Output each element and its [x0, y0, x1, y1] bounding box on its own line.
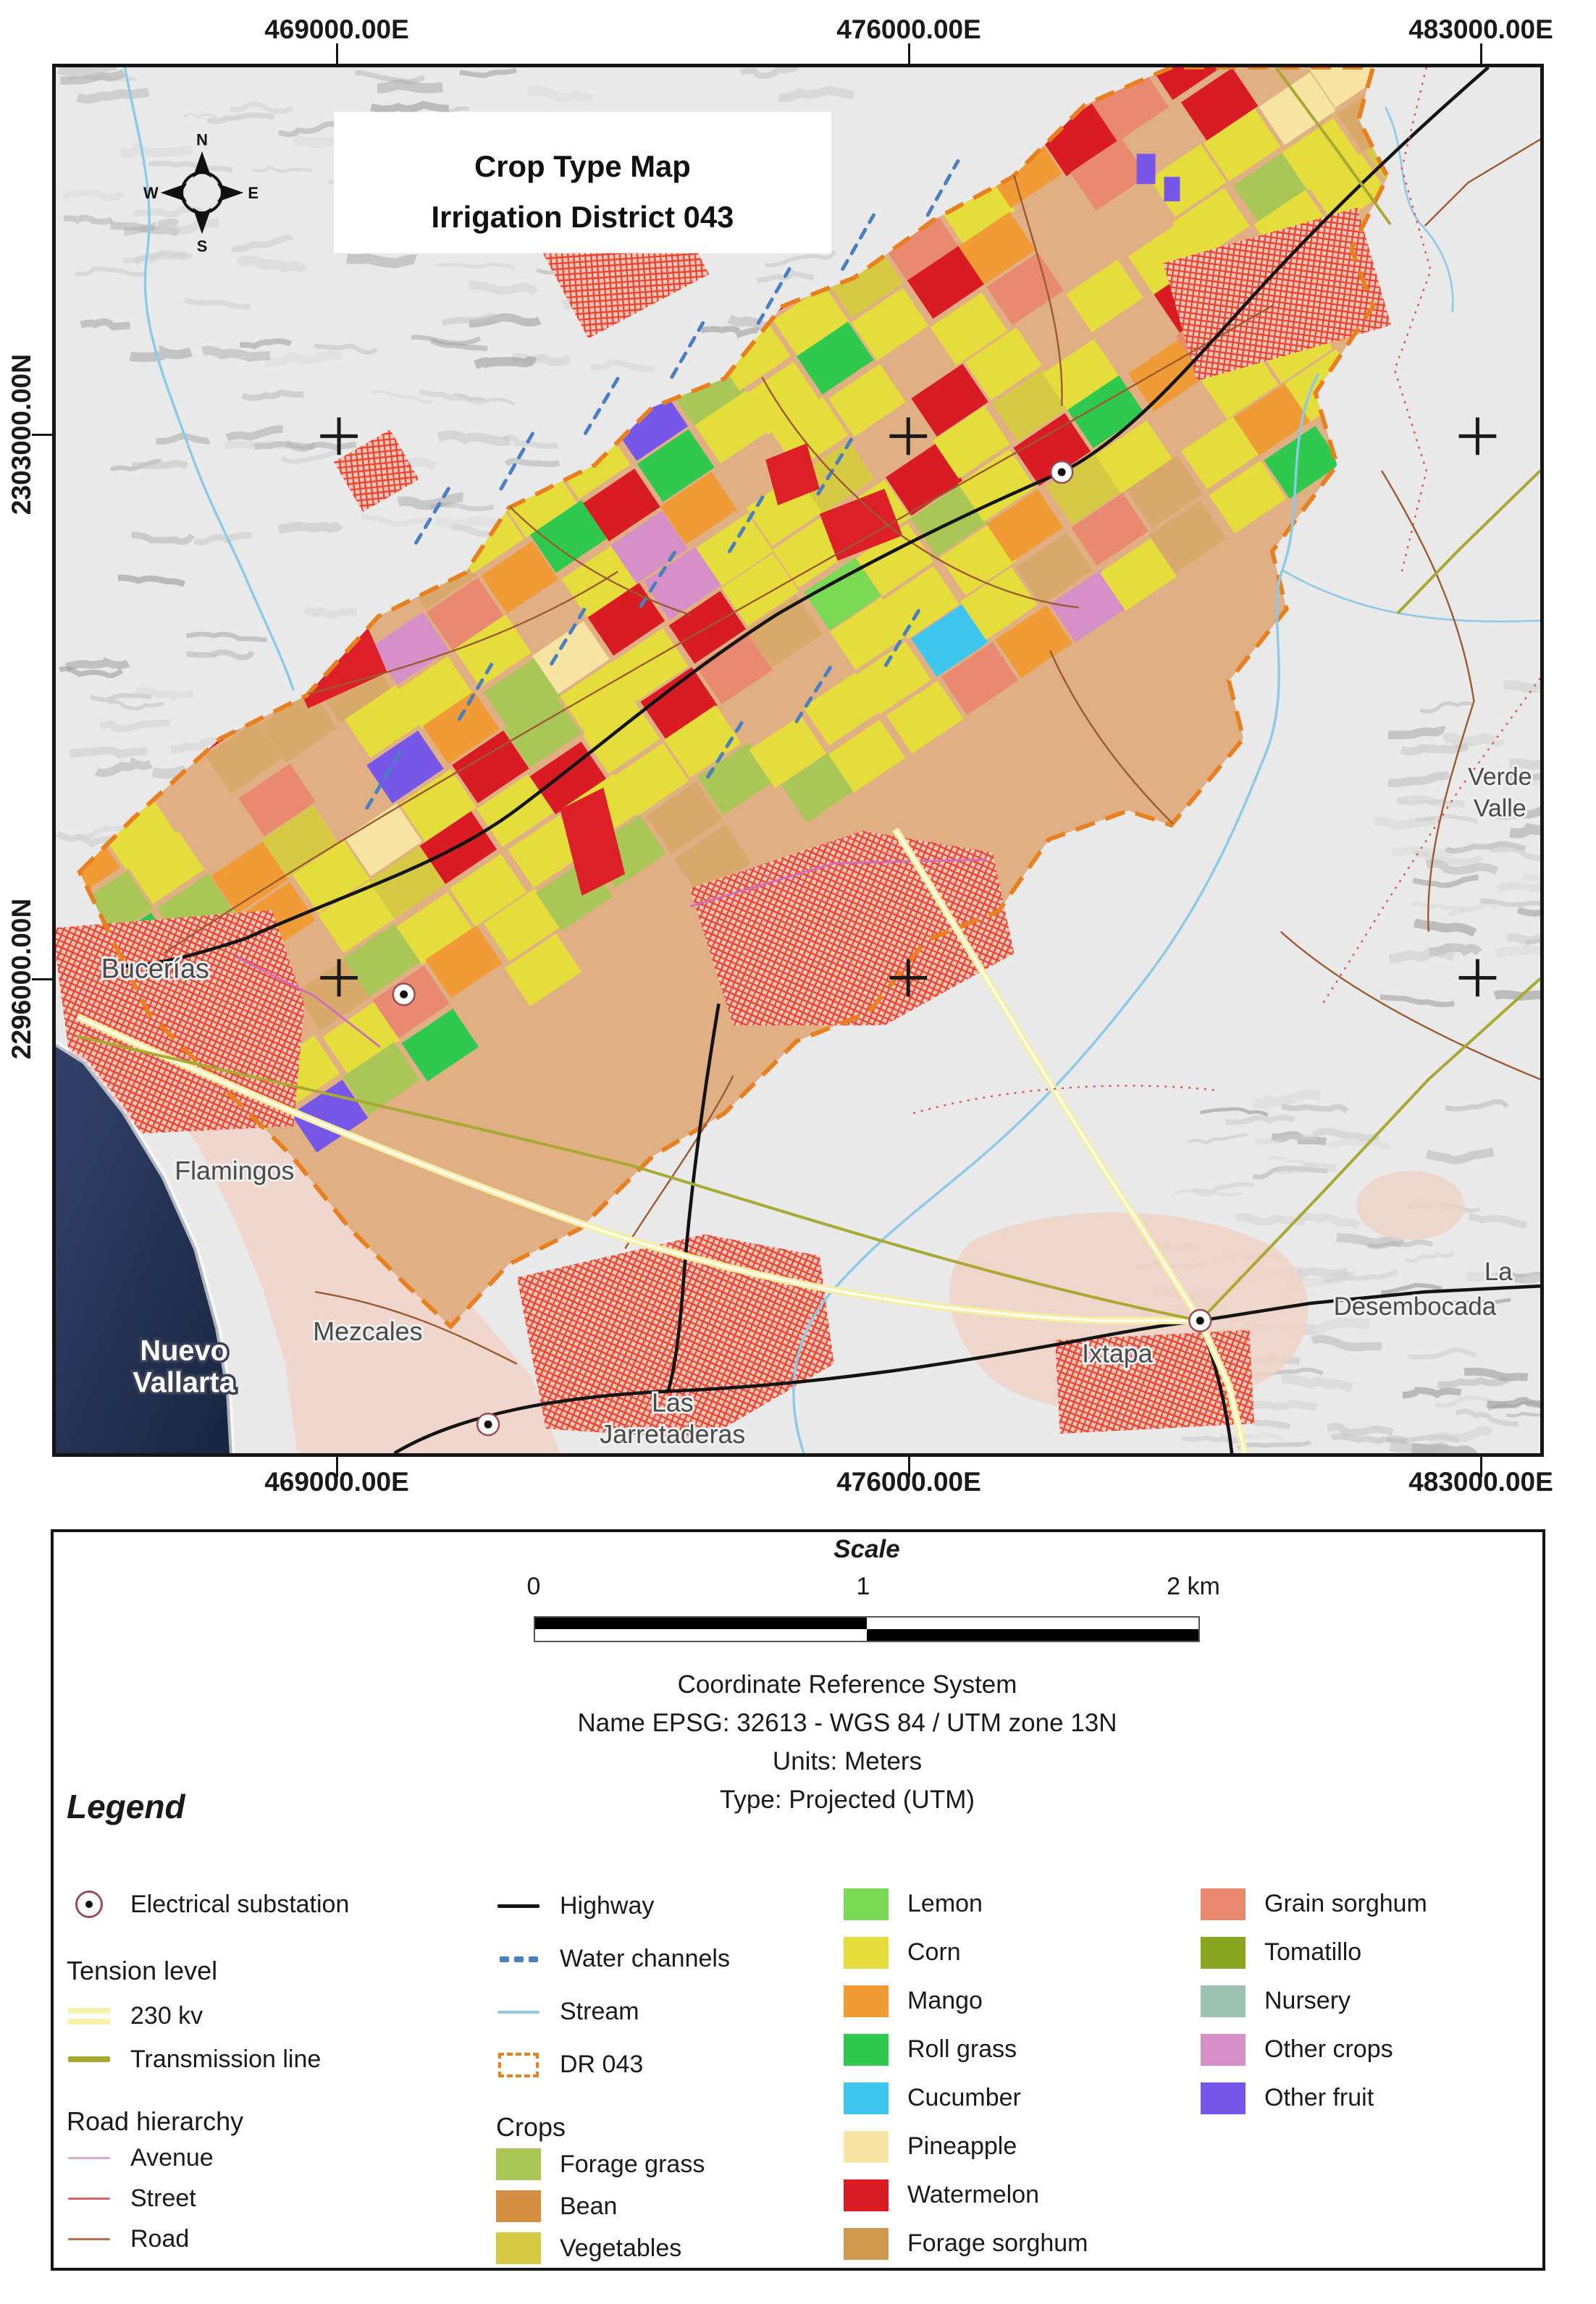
scale-title: Scale: [534, 1535, 1200, 1564]
scale-bar: [534, 1616, 1200, 1642]
map-canvas: N S W E Crop Type Map Irrigation Distric…: [56, 67, 1540, 1453]
grid-tick: [908, 1457, 910, 1477]
substation-legend-icon: [75, 1891, 103, 1918]
map-title-line2: Irrigation District 043: [432, 200, 734, 234]
legend-item: Other fruit: [1201, 2074, 1541, 2122]
place-label: Bucerías: [101, 954, 209, 984]
substation-icon: [477, 1413, 499, 1435]
scale-label-0: 0: [527, 1573, 541, 1601]
legend-item: Other crops: [1201, 2025, 1541, 2074]
place-label: NuevoVallarta: [133, 1335, 235, 1399]
legend-item: Grain sorghum: [1201, 1880, 1541, 1928]
grid-x-label: 476000.00E: [836, 14, 981, 45]
legend-item: Bean: [496, 2185, 822, 2227]
legend-item: Highway: [496, 1880, 822, 1933]
legend-item: Tomatillo: [1201, 1928, 1541, 1977]
legend-item: Electrical substation: [67, 1880, 472, 1929]
map-title-line1: Crop Type Map: [474, 149, 691, 183]
legend-item: Pineapple: [844, 2122, 1177, 2171]
place-label: Ixtapa: [1082, 1340, 1153, 1368]
svg-text:N: N: [196, 130, 208, 148]
grid-tick: [336, 1457, 338, 1477]
scale-label-2: 2 km: [1167, 1573, 1220, 1601]
place-label: La: [1484, 1258, 1513, 1286]
substation-icon: [1051, 461, 1072, 483]
place-label: Flamingos: [175, 1156, 294, 1185]
svg-text:E: E: [248, 184, 259, 202]
legend-item: Transmission line: [67, 2039, 472, 2080]
grid-tick: [908, 43, 910, 64]
legend-item: Roll grass: [844, 2025, 1177, 2074]
legend-item: 230 kv: [67, 1993, 472, 2039]
legend-item: Nursery: [1201, 1977, 1541, 2025]
legend-section-header: Road hierarchy: [67, 2106, 472, 2137]
legend-column-4: Grain sorghumTomatilloNurseryOther crops…: [1201, 1880, 1541, 2122]
legend-item: Forage sorghum: [844, 2219, 1177, 2268]
grid-tick: [336, 43, 338, 64]
legend-item: Avenue: [67, 2137, 472, 2178]
svg-text:S: S: [197, 237, 208, 256]
legend-column-1: Electrical substationTension level230 kv…: [67, 1880, 472, 2259]
legend-item: Road: [67, 2219, 472, 2259]
legend-item: Street: [67, 2178, 472, 2219]
legend-item: Water channels: [496, 1933, 822, 1985]
crs-line: Name EPSG: 32613 - WGS 84 / UTM zone 13N: [340, 1704, 1354, 1742]
grid-tick: [1480, 43, 1482, 64]
grid-tick: [1480, 1457, 1482, 1477]
grid-x-label: 469000.00E: [264, 14, 409, 45]
legend-section-header: Tension level: [67, 1955, 472, 1987]
place-label: Desembocada: [1334, 1292, 1497, 1321]
legend-section-header: Crops: [496, 2111, 822, 2143]
substation-icon: [1189, 1310, 1211, 1332]
legend-column-3: LemonCornMangoRoll grassCucumberPineappl…: [844, 1880, 1177, 2268]
legend-item: Vegetables: [496, 2227, 822, 2269]
desembocada-tint: [1356, 1171, 1464, 1240]
legend-item: Lemon: [844, 1880, 1177, 1928]
grid-x-label: 483000.00E: [1408, 14, 1553, 45]
legend-item: Mango: [844, 1977, 1177, 2025]
legend-item: Cucumber: [844, 2074, 1177, 2122]
grid-tick: [32, 978, 52, 980]
svg-text:W: W: [143, 184, 159, 202]
legend-item: Forage grass: [496, 2143, 822, 2185]
legend-item: Corn: [844, 1928, 1177, 1977]
legend-column-2: HighwayWater channelsStreamDR 043CropsFo…: [496, 1880, 822, 2269]
legend-title: Legend: [67, 1787, 185, 1826]
legend-item: Watermelon: [844, 2171, 1177, 2219]
map-title-box: Crop Type Map Irrigation District 043: [334, 112, 831, 253]
crs-line: Coordinate Reference System: [340, 1665, 1354, 1704]
crs-line: Type: Projected (UTM): [340, 1780, 1354, 1819]
grid-tick: [32, 434, 52, 436]
page: N S W E Crop Type Map Irrigation Distric…: [0, 0, 1596, 2304]
legend-item: Stream: [496, 1985, 822, 2038]
legend-item: DR 043: [496, 2038, 822, 2091]
crs-line: Units: Meters: [340, 1742, 1354, 1780]
map-frame: N S W E Crop Type Map Irrigation Distric…: [52, 64, 1544, 1457]
place-label: Mezcales: [313, 1317, 422, 1346]
scale-label-1: 1: [857, 1573, 870, 1601]
substation-icon: [393, 983, 415, 1005]
crs-info: Coordinate Reference SystemName EPSG: 32…: [340, 1665, 1354, 1819]
